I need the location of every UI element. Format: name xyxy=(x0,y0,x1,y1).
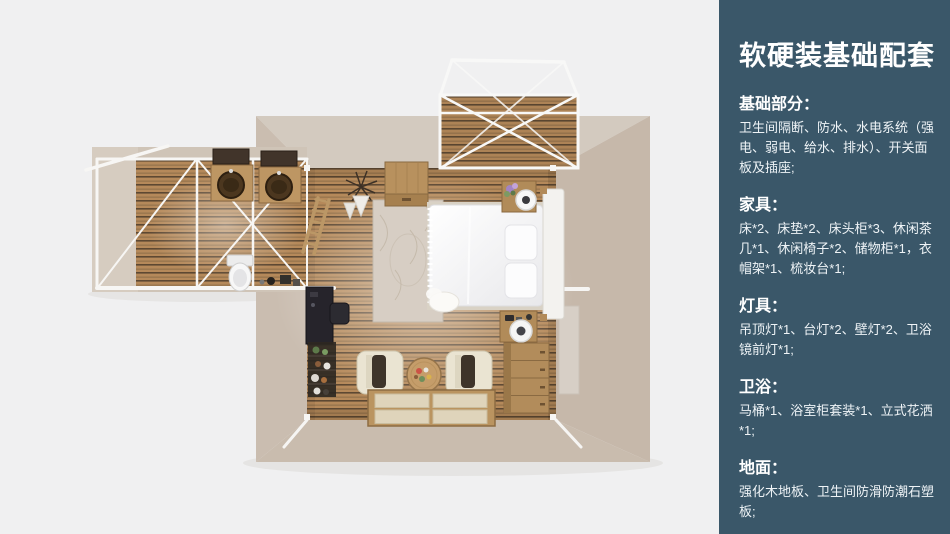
seat-cushion xyxy=(372,355,386,388)
drawer-handle xyxy=(402,198,411,201)
spec-section-flooring: 地面： 强化木地板、卫生间防滑防潮石塑板; xyxy=(739,458,936,522)
section-body: 吊顶灯*1、台灯*2、壁灯*2、卫浴镜前灯*1; xyxy=(739,320,936,360)
faucet-icon xyxy=(229,169,233,173)
spec-sections: 基础部分： 卫生间隔断、防水、水电系统（强电、弱电、给水、排水）、开关面板及插座… xyxy=(739,94,936,522)
headboard xyxy=(543,189,564,319)
armchair-left xyxy=(357,351,403,394)
pillow xyxy=(505,225,537,260)
desk xyxy=(306,287,333,344)
nightstand-bottom xyxy=(500,311,537,342)
armchair-right xyxy=(446,351,492,394)
floorplan-render xyxy=(0,0,719,534)
section-heading: 家具： xyxy=(739,195,936,216)
section-heading: 地面： xyxy=(739,458,936,479)
section-body: 床*2、床垫*2、床头柜*3、休闲茶几*1、休闲椅子*2、储物柜*1，衣帽架*1… xyxy=(739,219,936,279)
bathroom-vanity-left xyxy=(211,165,253,201)
panel-title: 软硬装基础配套 xyxy=(739,40,936,72)
bathroom-annex xyxy=(86,146,334,292)
spec-section-lighting: 灯具： 吊顶灯*1、台灯*2、壁灯*2、卫浴镜前灯*1; xyxy=(739,296,936,360)
bathroom-vanity-right xyxy=(259,167,301,203)
desk-chair xyxy=(330,303,349,324)
section-body: 卫生间隔断、防水、水电系统（强电、弱电、给水、排水）、开关面板及插座; xyxy=(739,118,936,178)
spec-section-bathroom: 卫浴： 马桶*1、浴室柜套装*1、立式花洒*1; xyxy=(739,377,936,441)
spec-section-furniture: 家具： 床*2、床垫*2、床头柜*3、休闲茶几*1、休闲椅子*2、储物柜*1，衣… xyxy=(739,195,936,279)
coffee-table xyxy=(407,358,441,392)
spec-panel: 软硬装基础配套 基础部分： 卫生间隔断、防水、水电系统（强电、弱电、给水、排水）… xyxy=(719,0,950,534)
section-body: 强化木地板、卫生间防滑防潮石塑板; xyxy=(739,482,936,522)
section-heading: 卫浴： xyxy=(739,377,936,398)
section-heading: 灯具： xyxy=(739,296,936,317)
slide: 软硬装基础配套 基础部分： 卫生间隔断、防水、水电系统（强电、弱电、给水、排水）… xyxy=(0,0,950,534)
seat-cushion xyxy=(461,355,475,388)
dresser xyxy=(504,343,549,413)
tatami-platform xyxy=(368,390,495,426)
bed xyxy=(426,187,564,321)
floorplan-canvas xyxy=(0,0,719,534)
nightstand-top xyxy=(502,181,536,212)
section-heading: 基础部分： xyxy=(739,94,936,115)
section-body: 马桶*1、浴室柜套装*1、立式花洒*1; xyxy=(739,401,936,441)
storage-cabinet xyxy=(385,162,428,206)
faucet-icon xyxy=(277,171,281,175)
etagere-shelf xyxy=(308,342,336,397)
toilet xyxy=(227,255,253,291)
pillow xyxy=(505,263,537,298)
spec-section-basics: 基础部分： 卫生间隔断、防水、水电系统（强电、弱电、给水、排水）、开关面板及插座… xyxy=(739,94,936,178)
